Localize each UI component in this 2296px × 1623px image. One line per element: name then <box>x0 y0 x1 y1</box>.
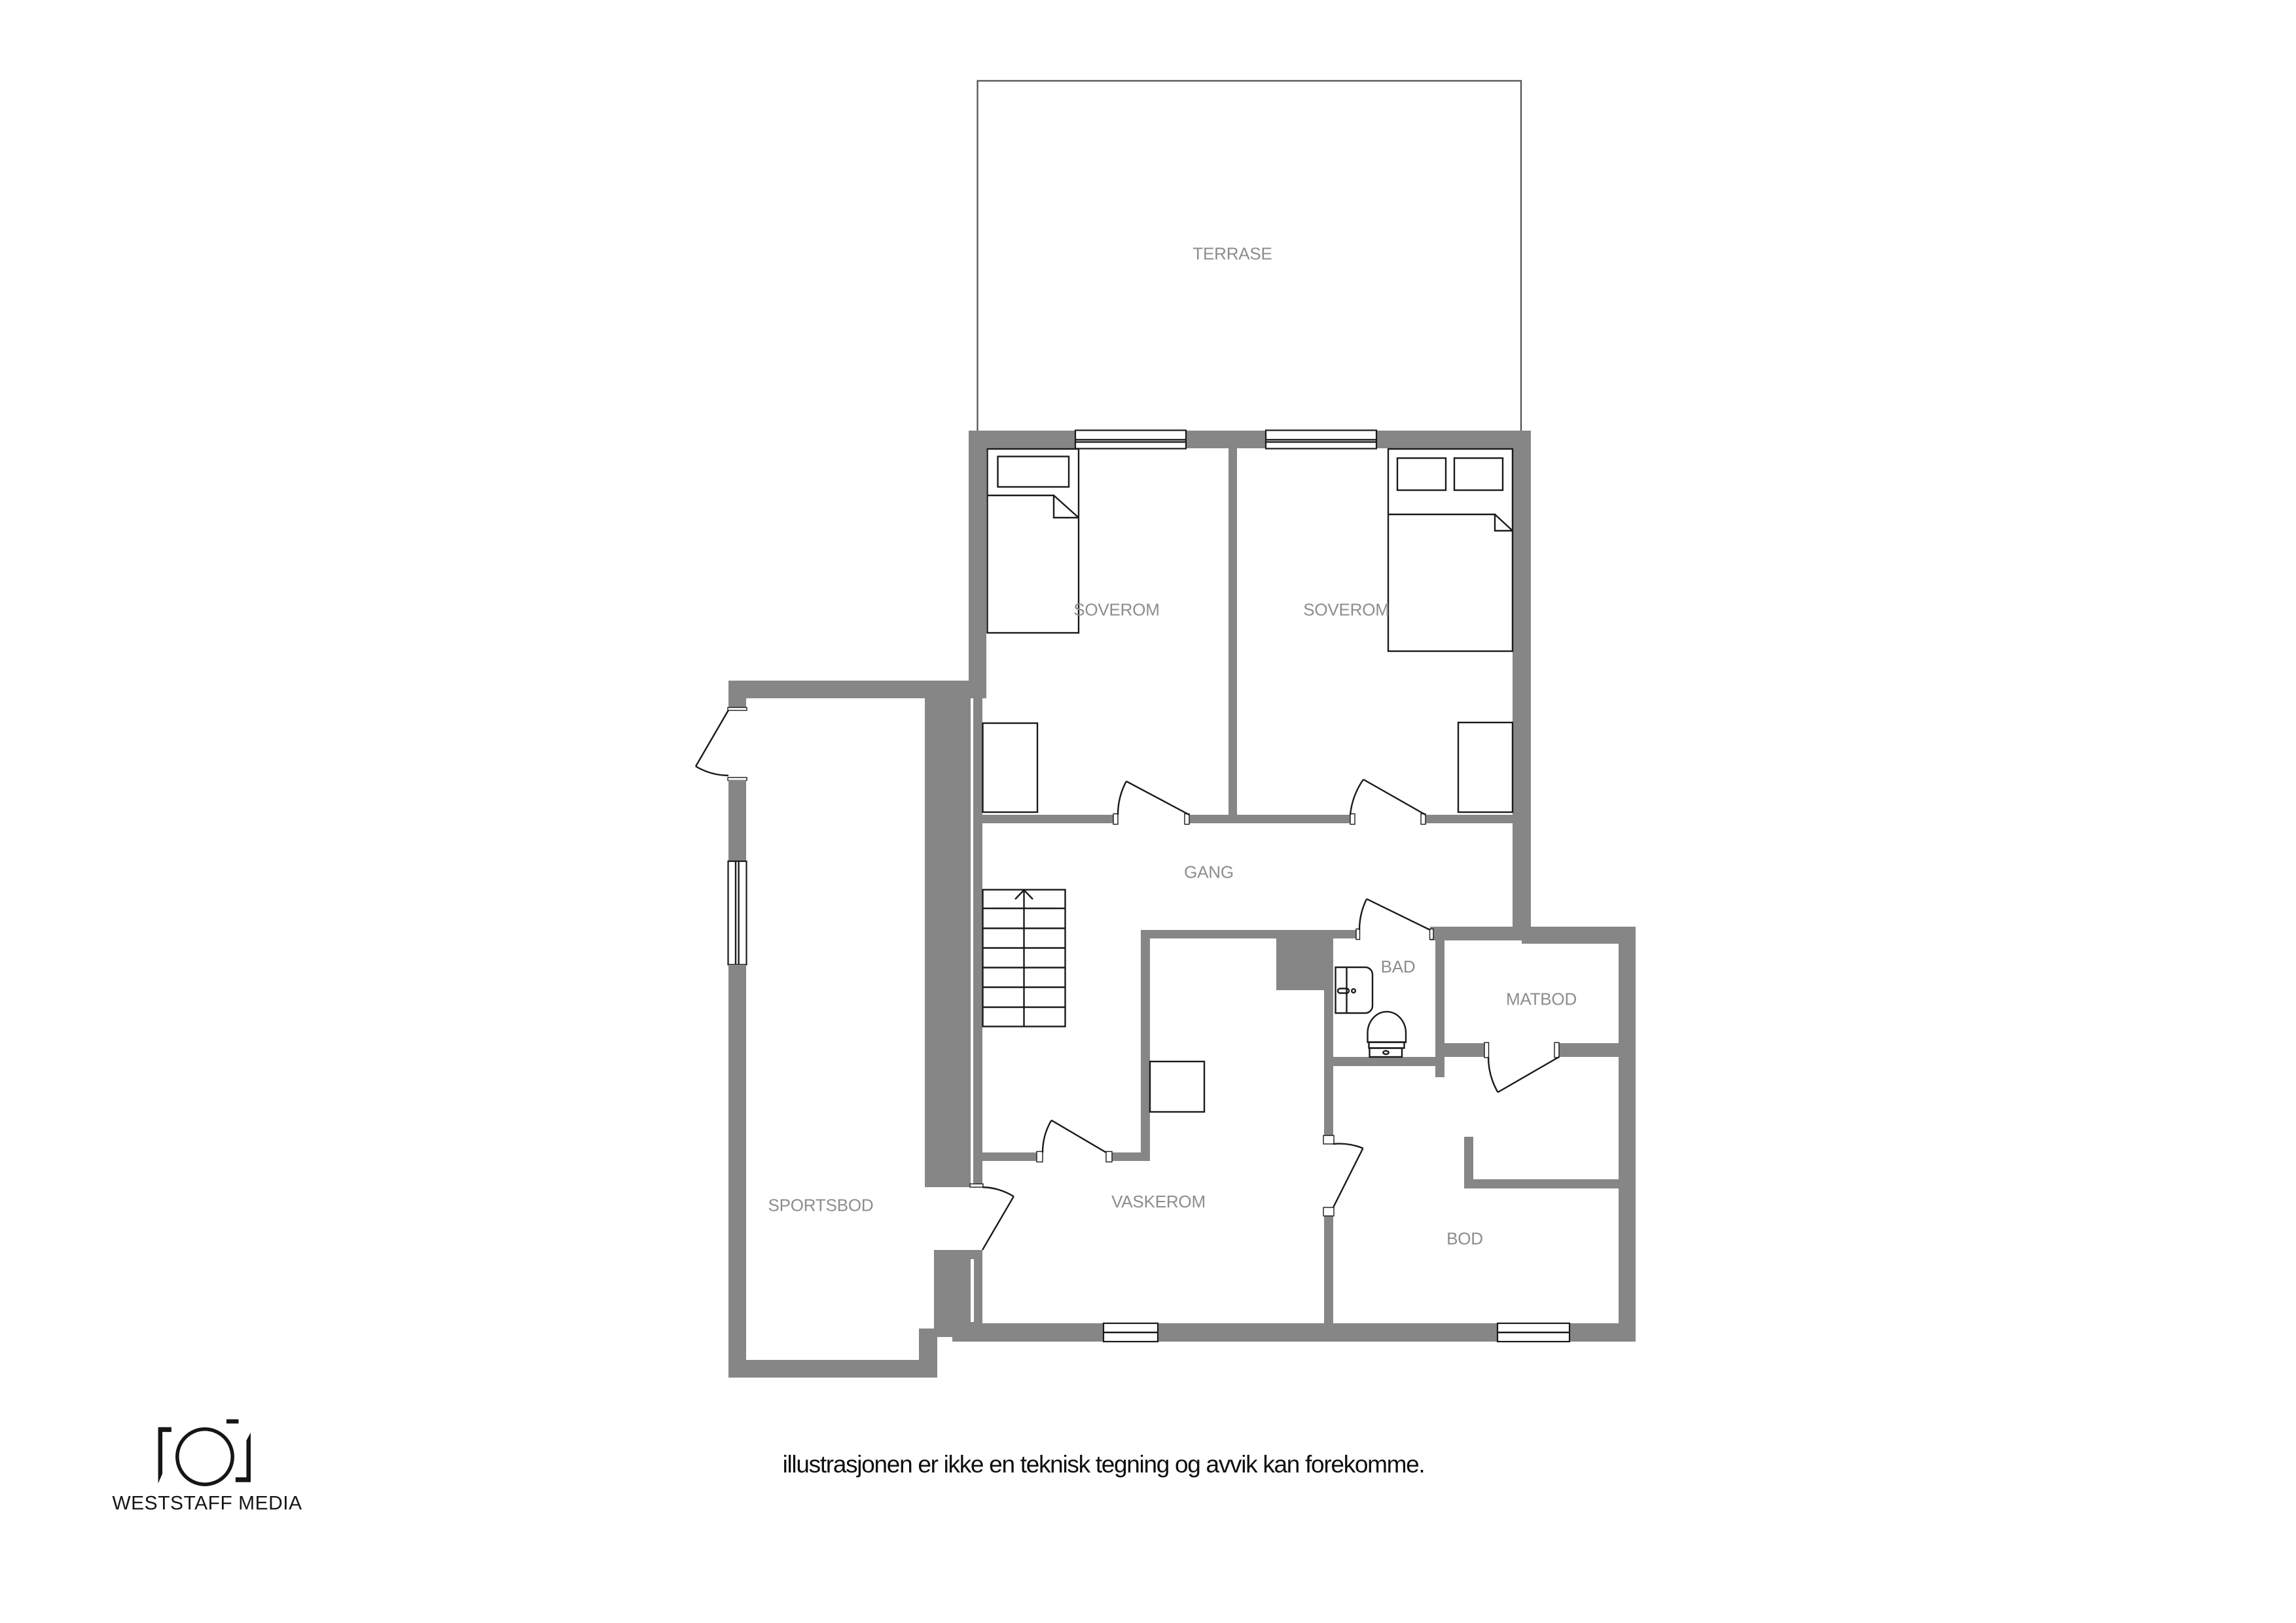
svg-text:BOD: BOD <box>1446 1229 1483 1249</box>
svg-text:WESTSTAFF MEDIA: WESTSTAFF MEDIA <box>112 1493 302 1514</box>
svg-text:BAD: BAD <box>1381 957 1416 976</box>
svg-text:TERRASE: TERRASE <box>1193 244 1272 264</box>
svg-text:VASKEROM: VASKEROM <box>1111 1192 1206 1211</box>
svg-text:MATBOD: MATBOD <box>1506 990 1577 1009</box>
svg-text:SPORTSBOD: SPORTSBOD <box>768 1196 874 1215</box>
svg-text:SOVEROM: SOVEROM <box>1303 600 1390 620</box>
svg-text:SOVEROM: SOVEROM <box>1073 600 1160 620</box>
svg-text:illustrasjonen er ikke en tekn: illustrasjonen er ikke en teknisk tegnin… <box>783 1451 1425 1478</box>
svg-text:GANG: GANG <box>1184 863 1234 882</box>
